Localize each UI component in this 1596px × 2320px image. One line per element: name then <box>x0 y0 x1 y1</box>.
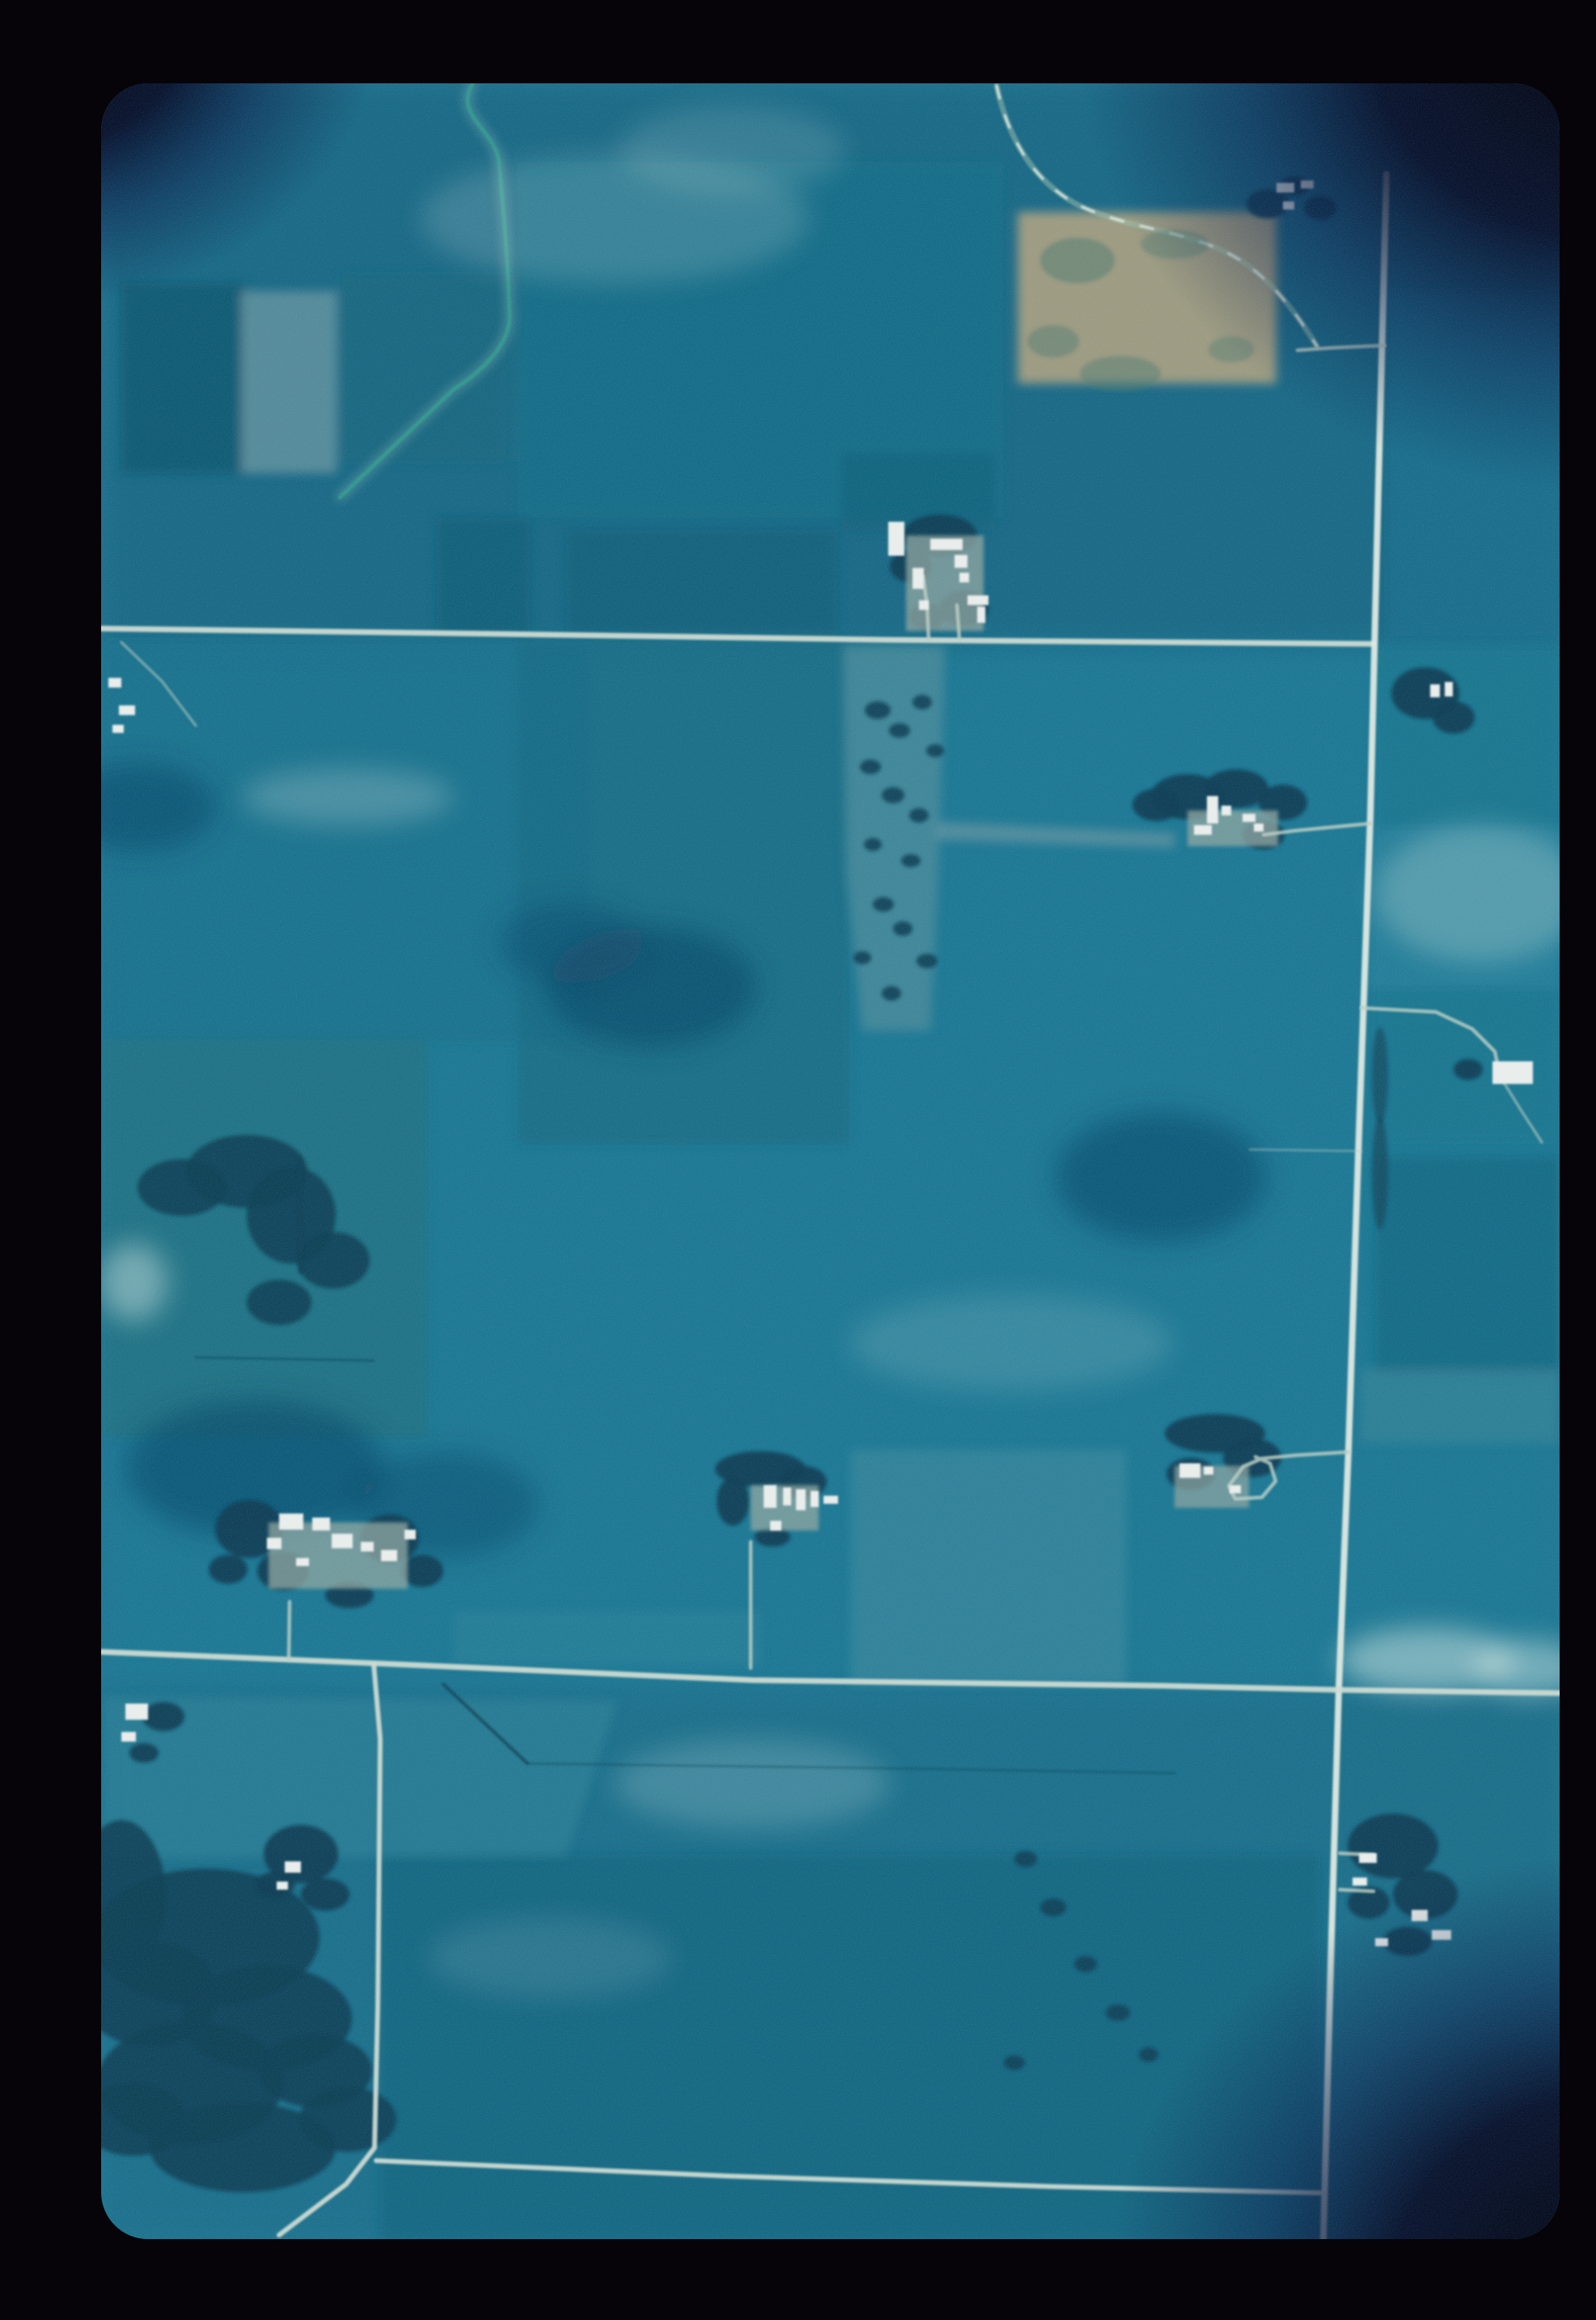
slide-stage <box>0 0 1596 2320</box>
film-grain <box>101 83 1560 2239</box>
aerial-photograph <box>0 0 1596 2320</box>
aerial-photo-slide <box>0 0 1596 2320</box>
